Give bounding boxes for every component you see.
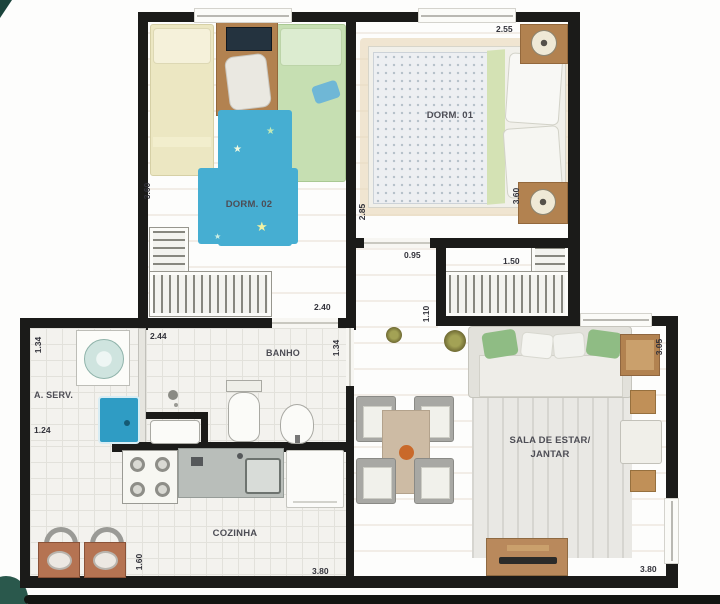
dorm01-closet-horizontal [446, 272, 568, 316]
window-line [197, 15, 289, 17]
window-line [421, 15, 513, 17]
wall [666, 316, 678, 498]
dim-closet: 1.50 [503, 256, 520, 266]
star-icon: ★ [233, 145, 242, 155]
dorm01-label: DORM. 01 [414, 110, 486, 122]
plant-icon [444, 330, 466, 352]
wall [20, 318, 272, 328]
star-icon: ★ [256, 222, 268, 232]
dim-sala-right: 3.05 [654, 336, 664, 358]
wall [666, 564, 678, 588]
sala-label-line2: JANTAR [500, 449, 600, 461]
dim-banho-top: 2.44 [150, 331, 167, 341]
shower-partition [201, 412, 208, 446]
kitchen-chair [38, 542, 80, 578]
centerpiece-icon [399, 445, 414, 460]
dim-dorm01-top: 2.55 [496, 24, 513, 34]
burner-icon [155, 457, 170, 472]
side-stool [630, 470, 656, 492]
kitchen-chair [84, 542, 126, 578]
dim-dorm01-right: 3.60 [511, 185, 521, 207]
single-bed-left [150, 24, 214, 176]
armchair [620, 420, 662, 464]
sofa-seat [479, 355, 623, 397]
side-table-top [626, 340, 654, 370]
door-leaf [349, 328, 351, 386]
window-line [671, 501, 673, 561]
side-stool [630, 390, 656, 414]
desk [216, 20, 278, 116]
sofa-pillow-green [585, 329, 622, 359]
burner-icon [130, 482, 145, 497]
chair-cushion [93, 551, 118, 570]
kitchen-sink [245, 458, 281, 494]
faucet-icon [237, 453, 243, 459]
dim-aserv-bottom: 1.24 [34, 425, 51, 435]
toilet [226, 380, 262, 392]
dim-dorm01-door: 0.95 [404, 250, 421, 260]
page-corner-decoration [0, 0, 12, 18]
wall [138, 12, 148, 330]
dim-hall-upper: 2.85 [357, 201, 367, 223]
wall [436, 316, 582, 326]
tank-drain-icon [124, 420, 130, 426]
shower-partition [146, 412, 208, 419]
dorm02-window [194, 8, 292, 23]
fridge [286, 450, 344, 508]
lamp-icon [530, 189, 556, 215]
dining-chair [414, 458, 454, 504]
sala-top-window [580, 313, 652, 327]
shower-head-icon [168, 390, 178, 400]
faucet-icon [295, 435, 300, 443]
aserv-label: A. SERV. [34, 389, 96, 401]
dim-cozinha-left: 1.60 [134, 551, 144, 573]
cozinha-label: COZINHA [204, 528, 266, 540]
dim-dorm02-bottom: 2.40 [314, 302, 331, 312]
bed-fold [153, 137, 211, 147]
bed-blanket [373, 52, 493, 204]
sala-right-window [664, 498, 679, 564]
bed-pillow [280, 28, 342, 66]
floor-plan-image: ★ ★ ★ ★ [0, 0, 720, 604]
tv-stand [486, 538, 568, 576]
dining-chair [356, 458, 396, 504]
window-line [583, 319, 649, 321]
tv-icon [499, 557, 557, 564]
chair-cushion [363, 467, 392, 499]
dish-icon [191, 457, 203, 466]
wall [430, 238, 580, 248]
bed-pillow [153, 28, 211, 64]
dim-sala-bottom: 3.80 [640, 564, 657, 574]
laundry-tank [98, 396, 140, 444]
sofa-pillow-white [552, 332, 586, 360]
page-bottom-bar [24, 595, 720, 604]
washer-drum-icon [84, 339, 124, 379]
sala-label-line1: SALA DE ESTAR/ [500, 435, 600, 447]
door-leaf [272, 322, 338, 324]
dim-hall-lower: 1.10 [421, 303, 431, 325]
dorm01-window [418, 8, 516, 23]
lamp-icon [531, 30, 557, 56]
dim-banho-right: 1.34 [331, 337, 341, 359]
wall [436, 238, 446, 326]
desk-chair [224, 53, 272, 112]
dim-cozinha-bottom: 3.80 [312, 566, 329, 576]
sofa-pillow-white [520, 331, 554, 359]
dorm02-label: DORM. 02 [214, 199, 284, 211]
dorm02-wardrobe-horizontal [150, 272, 271, 316]
bathroom-sink [280, 404, 314, 444]
wall [346, 12, 356, 330]
plant-icon [386, 327, 402, 343]
toy-airplane [311, 79, 341, 104]
banho-label: BANHO [258, 347, 308, 359]
wall [338, 318, 356, 328]
chair-cushion [47, 551, 72, 570]
star-icon: ★ [266, 127, 275, 137]
dim-aserv-left: 1.34 [33, 334, 43, 356]
burner-icon [155, 482, 170, 497]
door-leaf [364, 242, 430, 244]
stove [122, 450, 178, 504]
washing-machine [76, 330, 130, 386]
burner-icon [130, 457, 145, 472]
wall [346, 386, 354, 578]
computer-monitor [226, 27, 272, 51]
tv-stand-detail [507, 545, 549, 551]
toilet-bowl [228, 392, 260, 442]
sofa [468, 326, 632, 398]
wall [20, 318, 30, 588]
dim-dorm02-left: 3.60 [142, 180, 152, 202]
bed-green-throw [487, 49, 505, 205]
wall [346, 238, 366, 248]
star-icon: ★ [214, 232, 221, 242]
fridge-handle [293, 501, 337, 503]
chair-cushion [421, 467, 450, 499]
kitchen-counter [178, 448, 284, 498]
wall [568, 12, 580, 322]
shower-tray [150, 420, 200, 444]
sofa-pillow-green [481, 329, 519, 360]
